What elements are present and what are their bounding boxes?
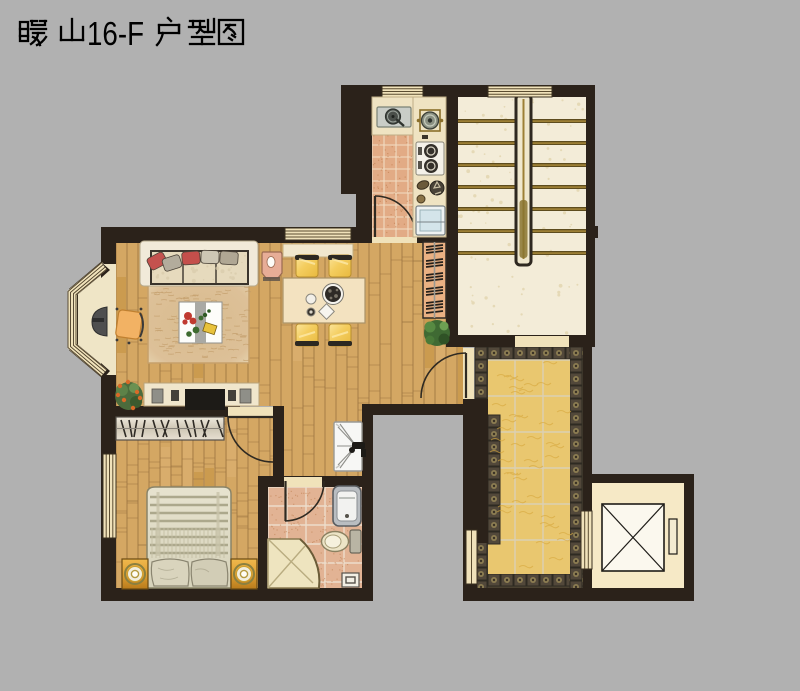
svg-text:16-F: 16-F: [87, 15, 144, 52]
